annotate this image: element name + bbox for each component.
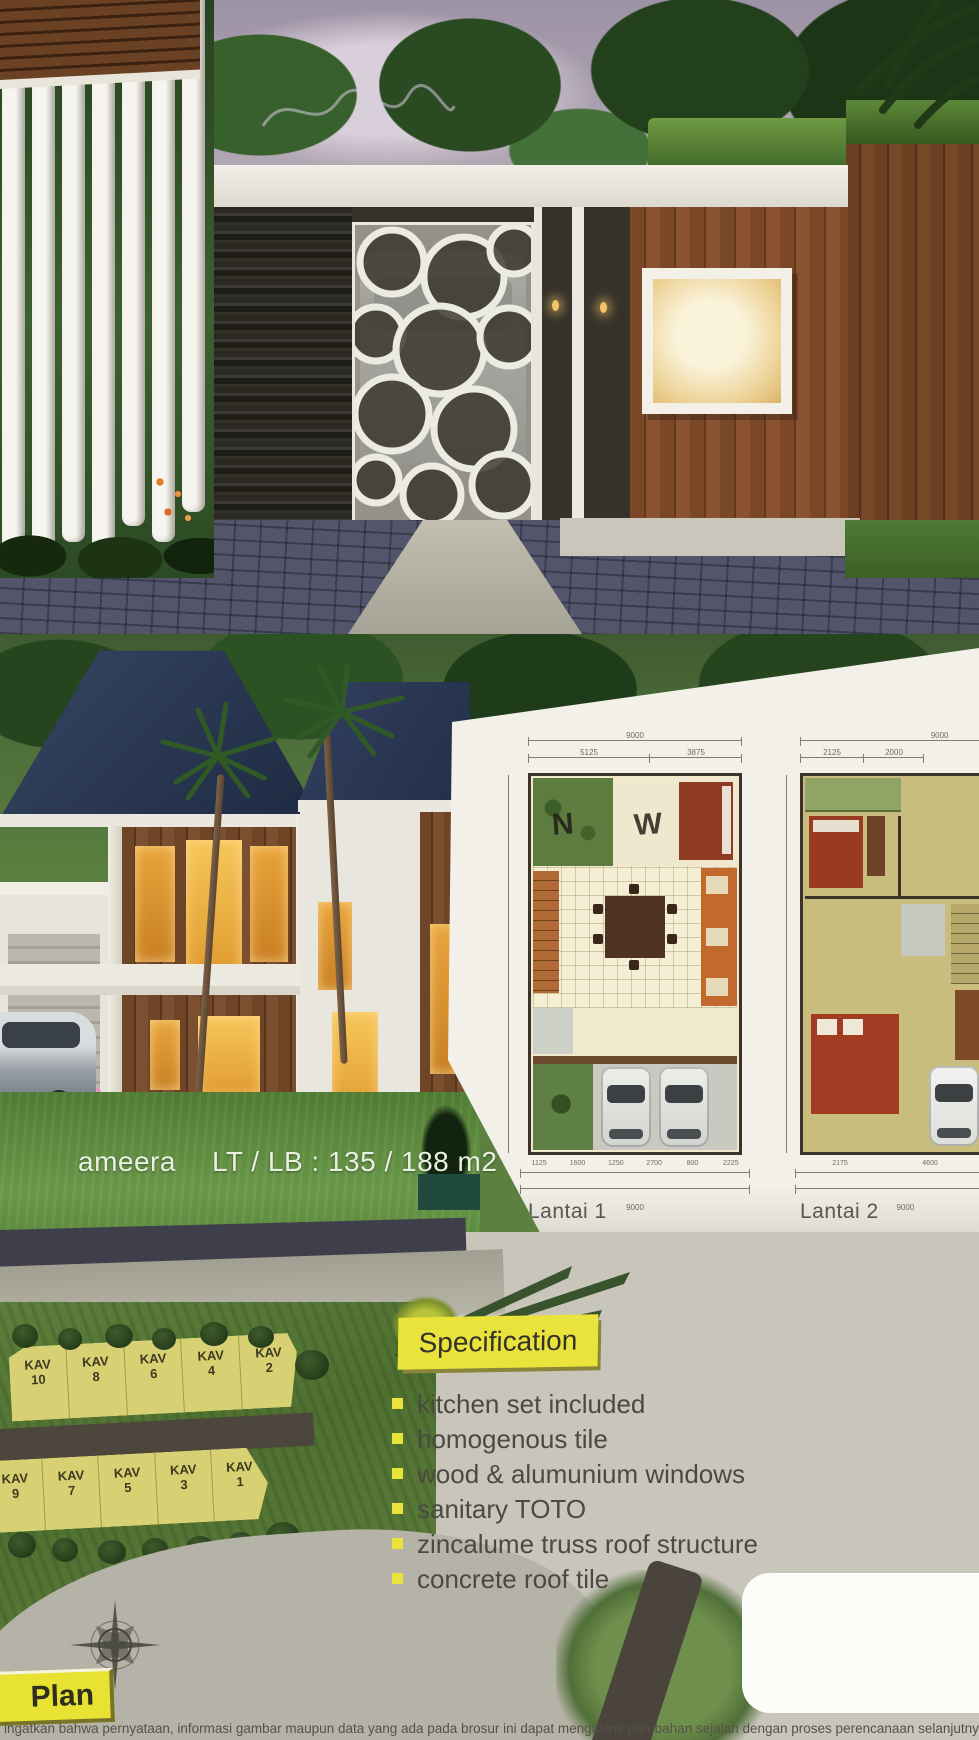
spec-item: zincalume truss roof structure xyxy=(392,1528,822,1563)
plan-label-box: Plan xyxy=(0,1668,115,1726)
plan-garden xyxy=(533,1064,593,1150)
plan-chair xyxy=(667,904,677,914)
dim-number: 2175 xyxy=(795,1160,885,1167)
illuminated-wall-niche xyxy=(642,268,792,414)
dim-number: 2125 xyxy=(823,748,841,757)
plan-chair xyxy=(629,960,639,970)
dim-number: 2700 xyxy=(635,1160,673,1167)
plan-bathroom xyxy=(901,904,945,956)
louver-fin-wall xyxy=(0,0,214,578)
floorplan-label-2: Lantai 2 xyxy=(800,1200,879,1224)
dim-row: 1125 1600 1250 2700 800 2225 xyxy=(520,1160,750,1167)
lot-prefix: KAV xyxy=(82,1353,109,1369)
dim-number: 4600 xyxy=(885,1160,975,1167)
louver-fin xyxy=(152,0,175,542)
dim-number: 3875 xyxy=(687,748,705,757)
right-wood-wall xyxy=(846,144,979,526)
bullet-square-icon xyxy=(392,1503,403,1514)
bullet-square-icon xyxy=(392,1433,403,1444)
tree-blob xyxy=(295,1350,329,1380)
lot-kav-8: KAV8 xyxy=(66,1342,128,1419)
lot-prefix: KAV xyxy=(1,1470,28,1486)
dim-row: 2175 4600 xyxy=(795,1160,975,1167)
lot-kav-4: KAV4 xyxy=(181,1335,243,1412)
bullet-square-icon xyxy=(392,1398,403,1409)
balcony-band xyxy=(0,964,312,986)
plan-wardrobe xyxy=(867,816,885,876)
plan-pillow xyxy=(843,1019,863,1035)
plan-car xyxy=(601,1067,651,1147)
dim-number: 1600 xyxy=(558,1160,596,1167)
lot-row-2: KAV9 KAV7 KAV5 KAV3 KAV1 xyxy=(0,1447,270,1534)
stone-accent-wall xyxy=(214,207,352,523)
dim-line: 2125 xyxy=(800,757,864,758)
plan-chair xyxy=(593,934,603,944)
tree-blob xyxy=(105,1324,133,1348)
warm-window xyxy=(250,846,288,962)
plan-carport xyxy=(593,1064,737,1150)
dim-number: 1250 xyxy=(597,1160,635,1167)
spec-item-text: sanitary TOTO xyxy=(417,1493,586,1525)
plan-beam xyxy=(533,1056,737,1064)
wall-lamp xyxy=(600,302,607,313)
dim-number: 9000 xyxy=(896,1203,914,1212)
dim-line: 5125 xyxy=(528,757,650,758)
lot-number: 1 xyxy=(236,1474,244,1489)
dim-number: 800 xyxy=(673,1160,711,1167)
gate-top-beam xyxy=(193,165,848,207)
listing-size: LT / LB : 135 / 188 m2 xyxy=(212,1146,497,1178)
lot-prefix: KAV xyxy=(24,1356,51,1372)
warm-window xyxy=(198,1016,260,1096)
bottom-section: KAV10 KAV8 KAV6 KAV4 KAV2 KAV9 KAV7 KAV5… xyxy=(0,1232,979,1740)
lot-prefix: KAV xyxy=(113,1464,140,1480)
lot-prefix: KAV xyxy=(139,1350,166,1366)
plan-car xyxy=(659,1067,709,1147)
lot-number: 7 xyxy=(68,1483,76,1498)
lot-kav-9: KAV9 xyxy=(0,1458,46,1533)
plan-pillow xyxy=(813,820,859,832)
bullet-square-icon xyxy=(392,1468,403,1479)
gate-post xyxy=(572,207,584,523)
spec-item: wood & alumunium windows xyxy=(392,1458,822,1493)
car-rear-window xyxy=(937,1128,971,1138)
listing-caption: ameera LT / LB : 135 / 188 m2 xyxy=(78,1146,497,1178)
plan-chair xyxy=(667,934,677,944)
specification-title: Specification xyxy=(418,1325,577,1360)
disclaimer-text: ingatkan bahwa pernyataan, informasi gam… xyxy=(4,1721,979,1740)
lot-number: 5 xyxy=(124,1480,132,1495)
circle-lattice-gate xyxy=(352,222,534,523)
scan-squiggle-artifact xyxy=(258,76,458,146)
tree-blob xyxy=(152,1328,176,1350)
plan-kitchen xyxy=(701,868,737,1006)
plan-stairs xyxy=(951,904,979,984)
tree-blob xyxy=(98,1540,126,1564)
car-windows xyxy=(2,1022,80,1048)
plan-balcony xyxy=(805,778,901,812)
spec-item-text: kitchen set included xyxy=(417,1388,645,1420)
warm-window xyxy=(135,846,175,962)
spec-item: homogenous tile xyxy=(392,1423,822,1458)
dim-number: 2000 xyxy=(885,748,903,757)
spec-item-text: homogenous tile xyxy=(417,1423,608,1455)
dim-number: 2225 xyxy=(712,1160,750,1167)
gate-post xyxy=(534,207,542,523)
plan-bathroom xyxy=(533,1008,573,1054)
lot-prefix: KAV xyxy=(226,1458,253,1474)
lot-number: 6 xyxy=(150,1366,158,1381)
lot-kav-7: KAV7 xyxy=(42,1455,102,1530)
floorplan-lantai-2 xyxy=(800,773,979,1155)
plan-appliance xyxy=(706,928,728,946)
plan-bed xyxy=(811,1014,899,1114)
plan-appliance xyxy=(706,876,728,894)
plan-car xyxy=(929,1066,979,1146)
lot-number: 3 xyxy=(180,1477,188,1492)
dim-line-vertical xyxy=(508,775,509,1153)
palm-fronds-icon xyxy=(788,0,979,150)
lot-number: 10 xyxy=(31,1372,46,1388)
spec-item-text: zincalume truss roof structure xyxy=(417,1528,758,1560)
hedge xyxy=(418,1174,480,1210)
plan-chair xyxy=(629,884,639,894)
lot-number: 8 xyxy=(92,1369,100,1384)
plan-wall xyxy=(805,896,979,899)
lot-number: 4 xyxy=(208,1363,216,1378)
spec-item-text: concrete roof tile xyxy=(417,1563,609,1595)
brochure-page: ameera LT / LB : 135 / 188 m2 9000 5125 … xyxy=(0,0,979,1740)
car-windshield xyxy=(935,1084,973,1102)
dim-line: 2000 xyxy=(864,757,924,758)
specification-list: kitchen set included homogenous tile woo… xyxy=(392,1388,822,1598)
dim-number: 9000 xyxy=(626,731,644,740)
dim-line: 3875 xyxy=(650,757,742,758)
grass-strip xyxy=(845,520,979,578)
hero-gate-photo xyxy=(0,0,979,634)
lot-prefix: KAV xyxy=(170,1461,197,1477)
palm-crowns-icon xyxy=(120,664,460,844)
wall-lamp xyxy=(552,300,559,311)
listing-name: ameera xyxy=(78,1146,176,1178)
car-windshield xyxy=(607,1085,645,1103)
shrubs xyxy=(0,516,214,578)
spec-item-text: wood & alumunium windows xyxy=(417,1458,745,1490)
dim-number: 9000 xyxy=(931,731,949,740)
dim-number: 1125 xyxy=(520,1160,558,1167)
lot-kav-3: KAV3 xyxy=(155,1450,215,1525)
watermark-letter: W xyxy=(633,807,664,843)
plan-label: Plan xyxy=(30,1678,95,1714)
plan-chair xyxy=(593,904,603,914)
watermark-letter: N xyxy=(551,807,575,842)
dim-line xyxy=(520,1172,750,1173)
lot-kav-10: KAV10 xyxy=(8,1345,70,1422)
plan-pillow xyxy=(817,1019,837,1035)
garage-canopy xyxy=(0,882,120,895)
plan-desk xyxy=(955,990,979,1060)
spec-item: sanitary TOTO xyxy=(392,1493,822,1528)
blank-logo-box xyxy=(742,1573,979,1713)
balcony-shadow xyxy=(0,986,312,995)
tree-blob xyxy=(248,1326,274,1348)
lot-prefix: KAV xyxy=(197,1347,224,1363)
specification-header: Specification xyxy=(398,1314,599,1370)
car-windshield xyxy=(665,1085,703,1103)
tree-blob xyxy=(12,1324,38,1348)
dim-number: 9000 xyxy=(626,1203,644,1212)
side-walkway xyxy=(560,518,860,556)
lot-prefix: KAV xyxy=(57,1467,84,1483)
plan-bed xyxy=(809,816,863,888)
tree-blob xyxy=(52,1538,78,1562)
wood-slat-canopy xyxy=(0,0,200,82)
car-rear-window xyxy=(609,1129,643,1139)
plan-appliance xyxy=(706,978,728,996)
lot-number: 2 xyxy=(265,1360,273,1375)
dim-line: 9000 xyxy=(528,740,742,741)
lot-kav-5: KAV5 xyxy=(99,1453,159,1528)
dim-line: 9000 xyxy=(520,1188,750,1189)
tree-blob xyxy=(200,1322,228,1346)
plan-wall xyxy=(898,816,901,898)
bullet-square-icon xyxy=(392,1573,403,1584)
plan-dining-table xyxy=(605,896,665,958)
lot-number: 9 xyxy=(12,1486,20,1501)
dim-line: 9000 xyxy=(795,1188,979,1189)
car-rear-window xyxy=(667,1129,701,1139)
dim-line: 9000 xyxy=(800,740,979,741)
dim-line-vertical xyxy=(786,775,787,1153)
dim-number: 5125 xyxy=(580,748,598,757)
plan-stairs xyxy=(533,871,559,993)
tree-blob xyxy=(8,1532,36,1558)
lot-kav-6: KAV6 xyxy=(124,1339,186,1416)
bullet-square-icon xyxy=(392,1538,403,1549)
tree-blob xyxy=(58,1328,82,1350)
spec-item: kitchen set included xyxy=(392,1388,822,1423)
plan-pillow xyxy=(722,786,731,854)
floorplan-label-1: Lantai 1 xyxy=(528,1200,607,1224)
dim-line xyxy=(795,1172,979,1173)
